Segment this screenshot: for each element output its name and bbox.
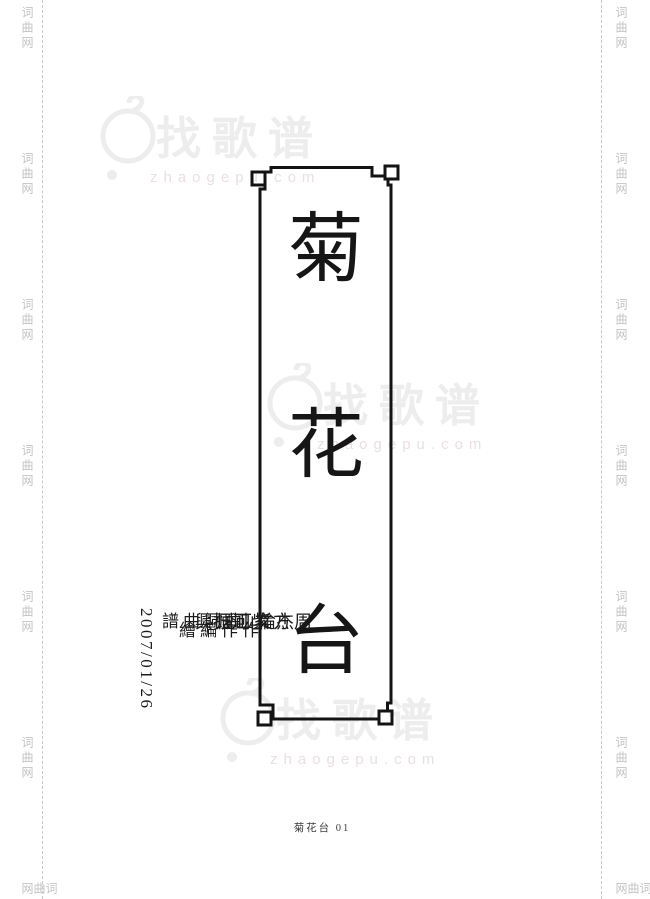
credit-date: 2007/01/26 xyxy=(138,608,155,710)
frame-corner-square-top-left xyxy=(252,172,265,185)
credit-name: 江振興 xyxy=(193,612,249,634)
title-char-2: 花 xyxy=(288,408,364,484)
title-char-1: 菊 xyxy=(288,212,364,288)
credit-transcriber: 江振興繪譜 xyxy=(160,612,248,641)
song-title: 菊 花 台 xyxy=(264,212,388,680)
credit-role: 繪譜 xyxy=(159,612,195,641)
frame-corner-square-bottom-left xyxy=(258,712,271,725)
frame-top-border xyxy=(265,168,385,177)
frame-corner-square-top-right xyxy=(385,166,398,179)
score-title-page: 词曲网 词曲网 词曲网 词曲网 词曲网 词曲网 词曲网 词曲网 词曲网 词曲网 … xyxy=(0,0,650,899)
frame-corner-square-bottom-right xyxy=(379,711,392,724)
page-footer: 菊花台 01 xyxy=(0,820,644,835)
frame-right-border xyxy=(388,179,392,711)
